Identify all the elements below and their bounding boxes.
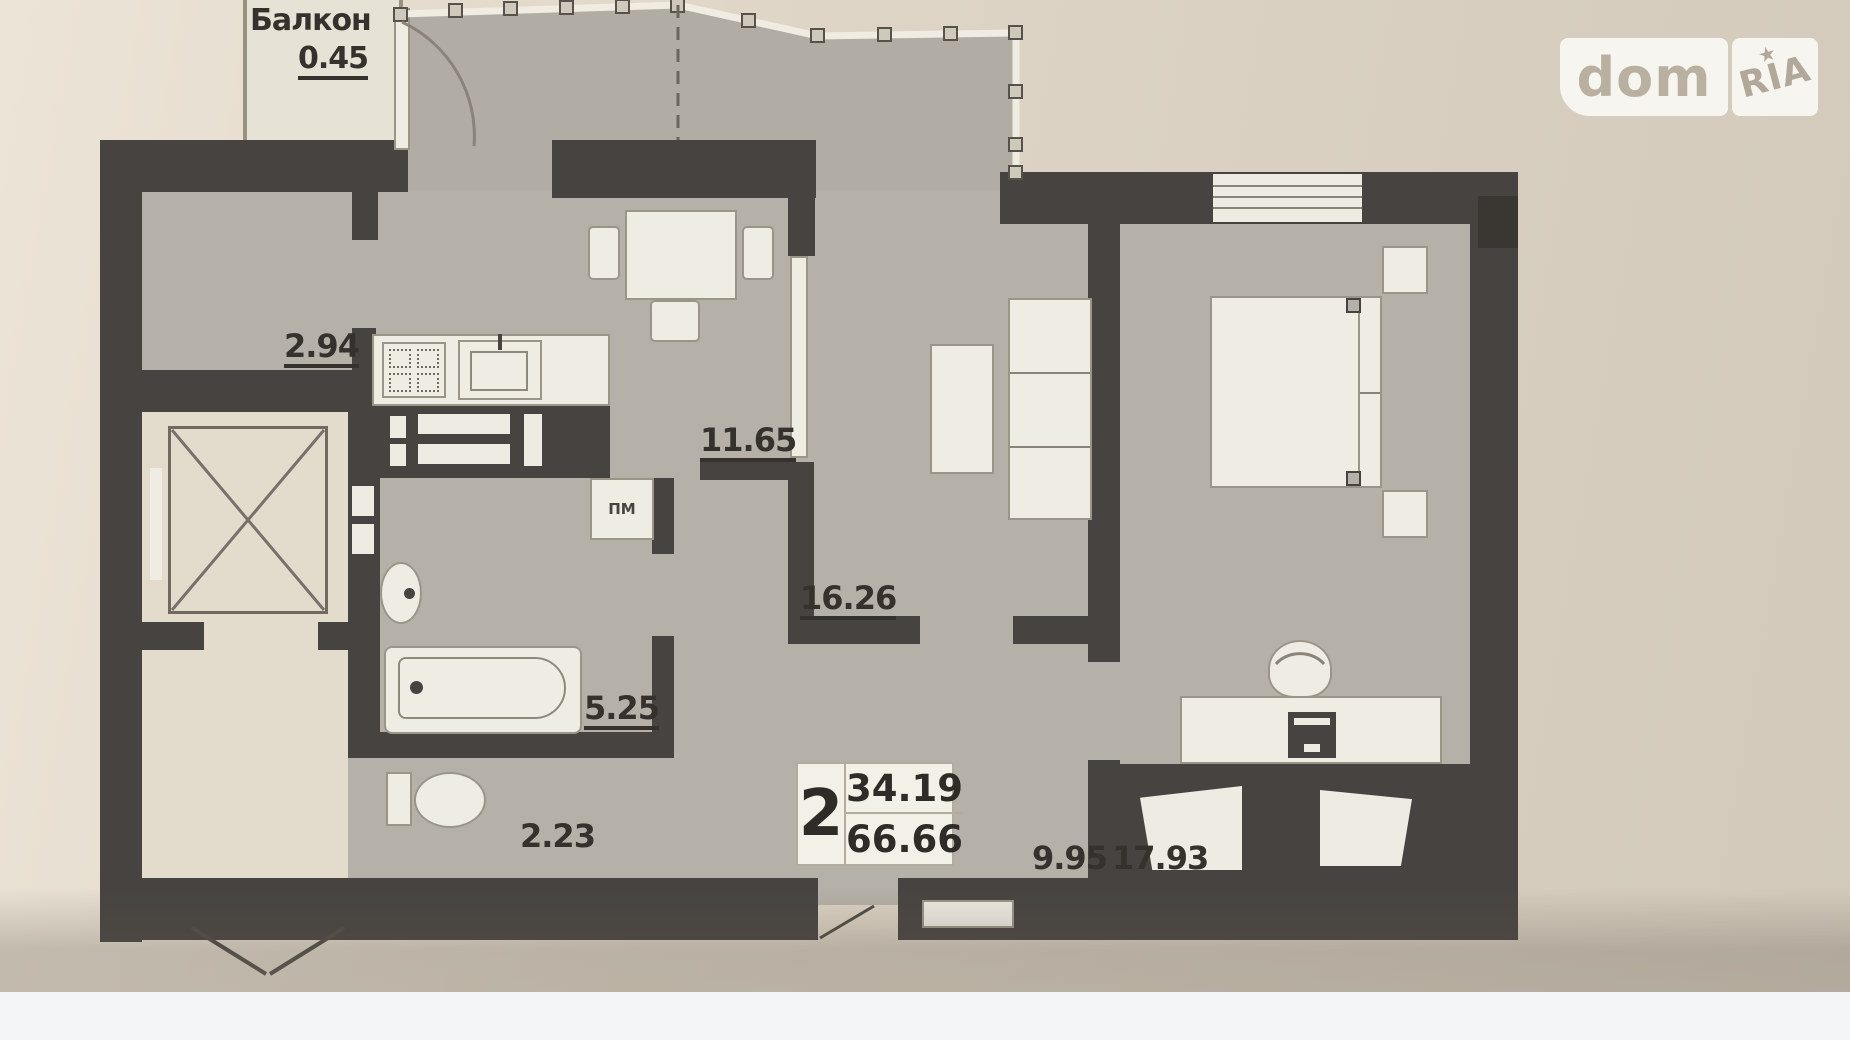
wall-bottom-left bbox=[100, 878, 818, 940]
balcony-door-leaf bbox=[394, 8, 410, 150]
elevator-shaft bbox=[168, 426, 328, 614]
duct-slot bbox=[418, 444, 510, 464]
nightstand bbox=[1382, 490, 1428, 538]
dining-chair bbox=[650, 300, 700, 342]
kitchen-sink bbox=[458, 340, 542, 400]
wall-kitchen-top bbox=[552, 140, 816, 198]
apartment-summary-box: 2 34.19 66.66 bbox=[796, 762, 954, 866]
toilet-tank bbox=[386, 772, 412, 826]
loggia-door-swing bbox=[820, 906, 874, 938]
duct-slot bbox=[352, 486, 374, 516]
duct-slot bbox=[524, 414, 542, 466]
bathroom-area-label: 5.25 bbox=[584, 692, 659, 730]
page-bottom-strip bbox=[0, 992, 1850, 1040]
stove bbox=[382, 342, 446, 398]
wall-pillar-c bbox=[1478, 196, 1518, 248]
washing-machine: ПМ bbox=[590, 478, 654, 540]
toilet-bowl bbox=[414, 772, 486, 828]
wardrobe bbox=[1008, 298, 1092, 520]
wall-living-foot-b bbox=[1013, 616, 1093, 644]
bedroom-window bbox=[1210, 174, 1365, 222]
nightstand bbox=[1382, 246, 1428, 294]
floor-plan-photo: ПМ bbox=[0, 0, 1850, 1040]
wall-pillar-b bbox=[788, 198, 815, 256]
wall-lobby-stub-left bbox=[142, 622, 204, 650]
dining-chair bbox=[588, 226, 620, 280]
desk-chair bbox=[1268, 640, 1332, 698]
wall-living-foot-a bbox=[788, 616, 920, 644]
ria-logo: ★ RIA bbox=[1732, 38, 1818, 116]
wall-left-outer bbox=[100, 140, 142, 942]
wc-area-label: 2.23 bbox=[520, 820, 595, 852]
coffee-table bbox=[930, 344, 994, 474]
bed-corner-notch bbox=[1346, 471, 1361, 486]
wall-top-left bbox=[100, 140, 408, 192]
wall-hall-bottom bbox=[118, 370, 376, 412]
wall-right-outer bbox=[1470, 172, 1518, 940]
elevator-door bbox=[150, 468, 162, 580]
living-area-label: 16.26 bbox=[800, 582, 896, 620]
bathtub bbox=[384, 646, 582, 734]
rooms-count: 2 bbox=[798, 764, 846, 864]
faucet-icon bbox=[498, 334, 502, 350]
dining-table bbox=[625, 210, 737, 300]
bathroom-sink bbox=[380, 562, 422, 624]
dining-chair bbox=[742, 226, 774, 280]
living-area-total: 34.19 bbox=[846, 764, 963, 814]
total-area: 66.66 bbox=[846, 814, 963, 864]
domria-watermark: dom ★ RIA bbox=[1560, 38, 1820, 118]
duct-slot bbox=[390, 444, 406, 466]
wall-bathroom-bottom bbox=[348, 732, 674, 758]
kitchen-area-label: 11.65 bbox=[700, 424, 796, 462]
wall-bedroom-left-upper bbox=[1088, 222, 1120, 662]
duct-slot bbox=[418, 414, 510, 434]
bedroom-area-label: 17.93 bbox=[1112, 842, 1208, 874]
loggia-door-panel bbox=[1320, 790, 1412, 866]
window-sill bbox=[922, 900, 1014, 928]
monitor bbox=[1288, 712, 1336, 758]
dom-logo: dom bbox=[1560, 38, 1728, 116]
bed-headboard bbox=[1358, 296, 1382, 488]
balcony-area-label: 0.45 bbox=[298, 44, 368, 80]
bed-corner-notch bbox=[1346, 298, 1361, 313]
wall-lobby-stub-right bbox=[318, 622, 350, 650]
duct-slot bbox=[352, 524, 374, 554]
bed-mattress bbox=[1210, 296, 1360, 488]
wall-bathroom-right-upper bbox=[652, 478, 674, 554]
duct-slot bbox=[390, 416, 406, 438]
corridor-area-label: 9.95 bbox=[1032, 842, 1107, 874]
drain-icon bbox=[410, 681, 423, 694]
hall-area-label: 2.94 bbox=[284, 330, 359, 368]
wall-pillar-a bbox=[352, 192, 378, 240]
washing-machine-label: ПМ bbox=[608, 500, 635, 518]
balcony-label: Балкон bbox=[250, 6, 371, 36]
